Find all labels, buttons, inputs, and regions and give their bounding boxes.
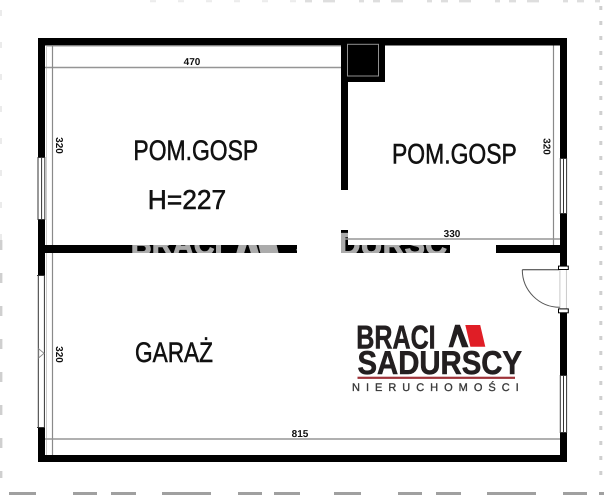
svg-text:320: 320 [541,138,552,155]
svg-text:330: 330 [444,229,461,240]
svg-text:SADURSCY: SADURSCY [358,344,522,381]
svg-text:320: 320 [53,137,64,154]
svg-text:H=227: H=227 [148,184,226,215]
svg-text:POM.GOSP: POM.GOSP [133,134,258,166]
svg-text:NIERUCHOMOŚCI: NIERUCHOMOŚCI [352,381,525,394]
svg-text:POM.GOSP: POM.GOSP [392,138,517,170]
svg-text:470: 470 [184,57,201,68]
svg-text:GARAŻ: GARAŻ [135,336,213,368]
svg-text:320: 320 [53,346,64,363]
svg-text:815: 815 [292,429,309,440]
